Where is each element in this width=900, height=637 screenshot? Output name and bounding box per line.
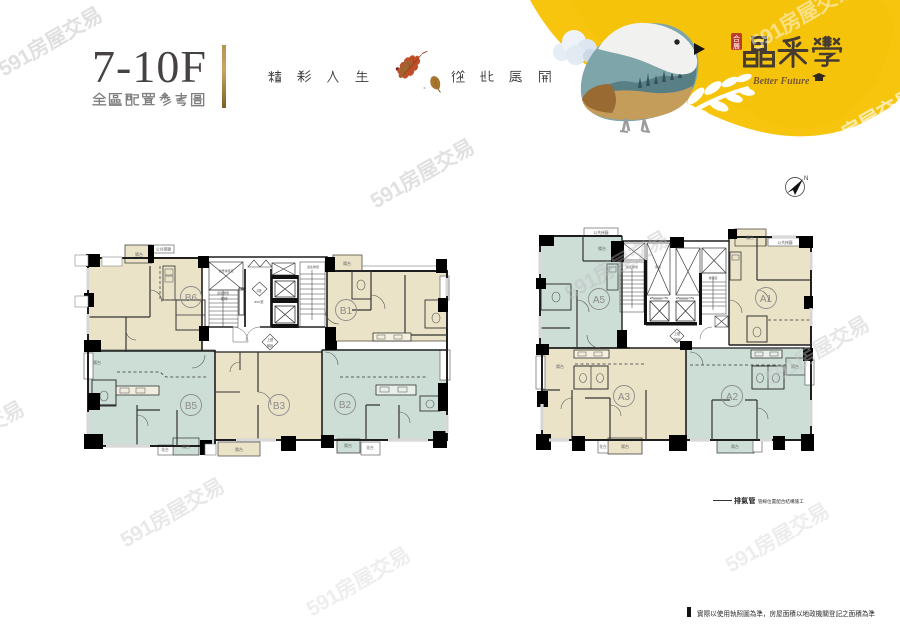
svg-text:陽台: 陽台 xyxy=(598,245,606,251)
svg-text:陽台: 陽台 xyxy=(556,363,564,369)
svg-text:公共梯廳: 公共梯廳 xyxy=(777,240,792,245)
svg-text:A5: A5 xyxy=(593,295,606,306)
svg-text:花台: 花台 xyxy=(161,447,169,452)
svg-text:上樓: 上樓 xyxy=(267,337,274,342)
svg-text:陽台: 陽台 xyxy=(135,251,143,257)
svg-text:梯廳: 梯廳 xyxy=(674,337,681,342)
svg-text:公共梯廳: 公共梯廳 xyxy=(593,230,608,235)
svg-text:B6: B6 xyxy=(185,293,198,304)
svg-text:陽台: 陽台 xyxy=(93,359,101,365)
svg-text:梯廳: 梯廳 xyxy=(267,343,274,348)
svg-text:陽台: 陽台 xyxy=(344,442,352,448)
svg-text:B3: B3 xyxy=(273,401,286,412)
svg-text:陽台: 陽台 xyxy=(343,260,351,266)
svg-text:公共梯廳: 公共梯廳 xyxy=(156,247,171,252)
svg-text:逃生梯間: 逃生梯間 xyxy=(307,264,319,269)
svg-text:花台: 花台 xyxy=(599,444,607,449)
svg-text:A2: A2 xyxy=(726,392,739,403)
svg-text:花台: 花台 xyxy=(366,445,374,450)
svg-text:B5: B5 xyxy=(185,401,198,412)
svg-text:N: N xyxy=(804,176,808,182)
svg-text:排煙室: 排煙室 xyxy=(708,275,717,280)
svg-text:B1: B1 xyxy=(340,306,353,317)
svg-text:A3: A3 xyxy=(618,392,631,403)
svg-text:上樓: 上樓 xyxy=(674,331,681,336)
svg-text:陽台: 陽台 xyxy=(235,446,243,452)
svg-text:A1: A1 xyxy=(760,294,773,305)
svg-text:當層排風室: 當層排風室 xyxy=(218,268,233,273)
svg-text:avu室: avu室 xyxy=(254,299,264,304)
svg-text:陽台: 陽台 xyxy=(182,443,190,449)
svg-text:樓梯: 樓梯 xyxy=(221,296,228,301)
svg-text:陽台: 陽台 xyxy=(621,443,629,449)
svg-text:陽台: 陽台 xyxy=(731,443,739,449)
svg-text:陽台: 陽台 xyxy=(746,234,754,240)
svg-text:逃生梯間: 逃生梯間 xyxy=(217,290,229,295)
svg-text:2樓: 2樓 xyxy=(257,288,263,293)
svg-text:B2: B2 xyxy=(339,400,352,411)
